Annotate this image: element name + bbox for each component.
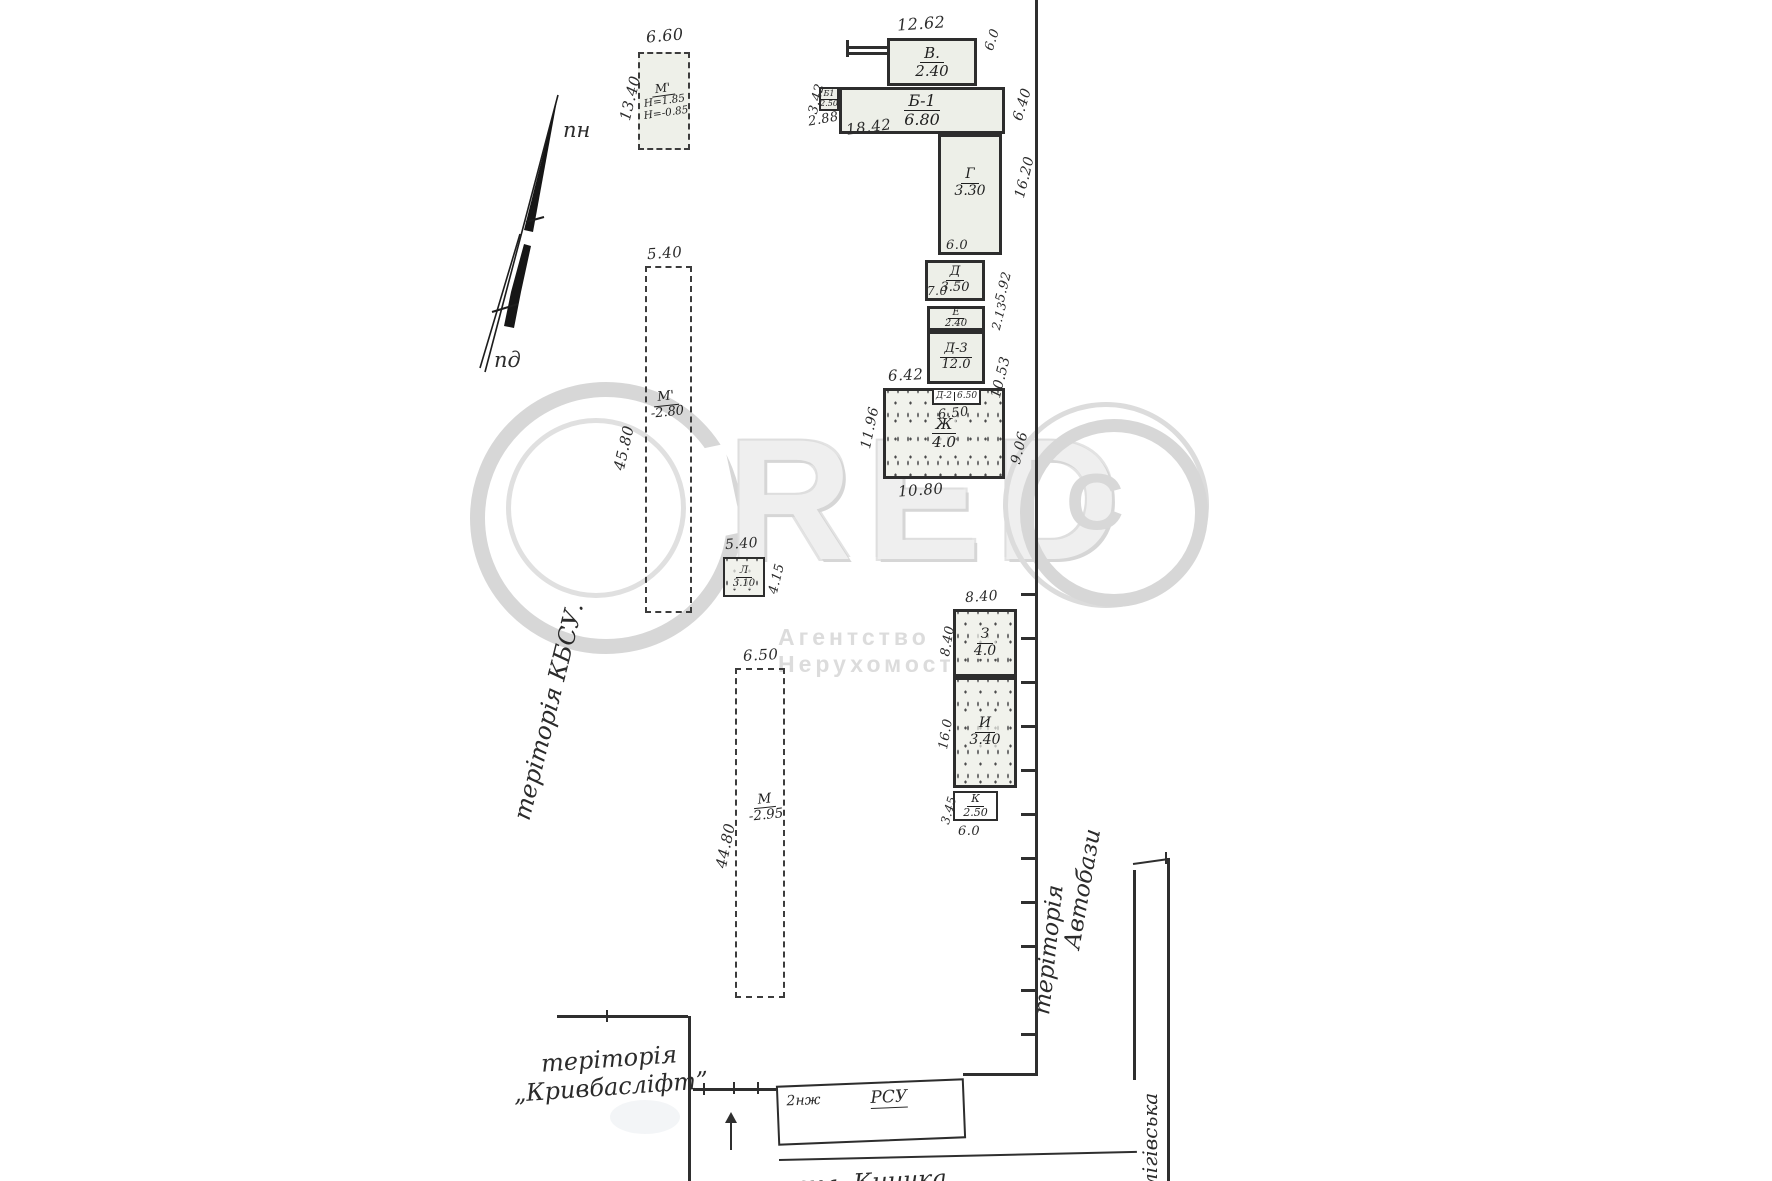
building-rsu-label: РСУ xyxy=(870,1087,908,1109)
building-v: В. 2.40 xyxy=(887,38,977,86)
compass-north-label: пн xyxy=(563,118,590,142)
building-v-label: В. xyxy=(920,45,944,63)
building-b1-label: Б-1 xyxy=(904,92,939,111)
dim-d2-bottom: 6.50 xyxy=(937,404,969,422)
street-right-label: лігівська xyxy=(1138,1093,1162,1181)
dim-e-right: 2.13 xyxy=(989,300,1010,331)
dim-m-top-width: 6.60 xyxy=(645,24,684,46)
pipe-line-bottom xyxy=(848,52,888,55)
entrance-arrow-head xyxy=(725,1112,737,1123)
building-d3-area: 12.0 xyxy=(942,358,971,373)
building-l: Л 3.10 xyxy=(723,557,765,597)
building-m-mid xyxy=(645,266,692,613)
boundary-corner-bottom xyxy=(963,1073,1038,1076)
entrance-arrow-shaft xyxy=(730,1122,732,1150)
building-g-label: Г xyxy=(961,167,978,184)
territory-kryvbaslift-label: теріторія „Кривбасліфт” xyxy=(503,1039,716,1109)
building-d2-label: Д-2 xyxy=(934,392,955,401)
dim-d-bottom: 7.0 xyxy=(927,284,948,298)
building-k-label: К xyxy=(967,793,984,806)
building-z: З 4.0 xyxy=(953,609,1017,677)
building-d2: Д-2 6.50 xyxy=(932,388,981,405)
street-right-line xyxy=(1167,858,1170,1181)
dim-d3-right: 10.53 xyxy=(988,355,1014,400)
dim-v-width: 12.62 xyxy=(896,12,946,34)
building-d3: Д-3 12.0 xyxy=(927,331,985,384)
building-v-area: 2.40 xyxy=(915,63,948,80)
building-d2-area: 6.50 xyxy=(955,392,979,401)
site-plan-scan: RED C Агентство Нерухомості пн пд М' Н=1… xyxy=(0,0,1772,1181)
building-z-label: З xyxy=(977,627,994,644)
dim-z-top: 8.40 xyxy=(964,588,998,606)
fence-left-horizontal xyxy=(557,1015,688,1018)
dim-zh-top: 6.42 xyxy=(888,365,924,385)
watermark-subtitle: Агентство Нерухомості xyxy=(778,624,965,678)
dim-d-right: 5.92 xyxy=(993,270,1015,304)
fence-left-tick xyxy=(606,1010,608,1022)
dim-v-right: 6.0 xyxy=(982,27,1003,53)
gate-tick-2 xyxy=(733,1082,735,1094)
compass-south-label: пд xyxy=(494,348,521,372)
building-m-top: М' Н=1.85 Н=-0.85 xyxy=(638,52,690,150)
gate-tick-3 xyxy=(757,1082,759,1094)
building-k: К 2.50 xyxy=(953,791,998,821)
watermark-copyright-c: C xyxy=(1066,462,1124,542)
building-m-mid-labelgroup: М' -2.80 xyxy=(649,388,685,421)
building-b1-area: 6.80 xyxy=(904,111,940,129)
building-zh-area: 4.0 xyxy=(932,434,956,451)
building-g: Г 3.30 xyxy=(938,134,1002,255)
street-bottom-line xyxy=(779,1151,1137,1161)
pipe-cap xyxy=(846,40,849,57)
building-e-area: 2.40 xyxy=(945,319,967,330)
building-i-label: И xyxy=(975,716,995,733)
dim-b1-right: 6.40 xyxy=(1010,86,1035,122)
building-k-area: 2.50 xyxy=(963,807,988,819)
building-d-label: Д xyxy=(946,265,965,281)
building-e: Е 2.40 xyxy=(927,306,985,331)
building-d3-label: Д-3 xyxy=(940,342,971,358)
dim-l-top: 5.40 xyxy=(724,535,758,553)
street-bottom-label: вул. Кничка xyxy=(794,1164,947,1181)
building-l-label: Л xyxy=(736,565,752,577)
building-i: И 3.40 xyxy=(953,677,1017,788)
building-rsu-floors: 2нж xyxy=(786,1092,821,1109)
building-rsu: 2нж РСУ xyxy=(776,1078,966,1145)
dim-zh-bottom: 10.80 xyxy=(897,479,944,500)
building-m-low xyxy=(735,668,785,998)
north-arrow xyxy=(440,72,580,382)
dim-g-bottom: 6.0 xyxy=(946,238,968,253)
boundary-line-secondary xyxy=(1133,870,1136,1080)
dim-k-bottom: 6.0 xyxy=(958,824,980,839)
building-g-area: 3.30 xyxy=(954,184,985,200)
building-m-low-labelgroup: М -2.95 xyxy=(746,790,784,825)
pipe-line-top xyxy=(848,46,888,49)
dim-g-right: 16.20 xyxy=(1012,155,1038,200)
building-i-area: 3.40 xyxy=(969,733,1000,749)
scan-smudge xyxy=(610,1100,680,1134)
building-z-area: 4.0 xyxy=(974,644,996,660)
dim-m-mid-top: 5.40 xyxy=(646,243,683,263)
dim-m-low-top: 6.50 xyxy=(743,645,779,665)
building-l-area: 3.10 xyxy=(733,578,755,589)
boundary-connector-tick xyxy=(1165,852,1167,864)
